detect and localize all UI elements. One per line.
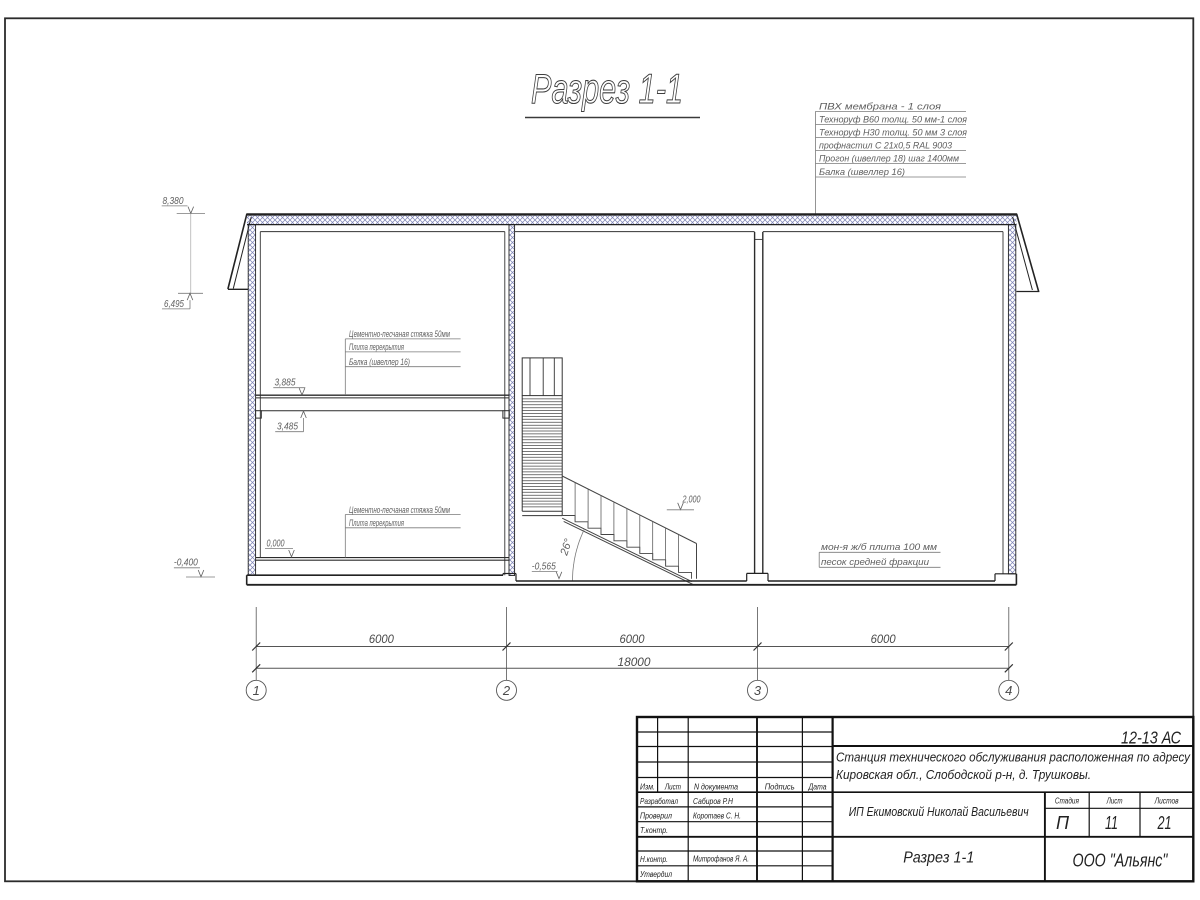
svg-text:21: 21: [1157, 813, 1172, 833]
svg-text:Станция технического обслужива: Станция технического обслуживания распол…: [836, 750, 1191, 765]
svg-text:6000: 6000: [369, 634, 395, 646]
svg-text:Изм.: Изм.: [640, 782, 655, 791]
svg-text:6,495: 6,495: [164, 299, 184, 310]
svg-text:Подпись: Подпись: [765, 782, 795, 791]
svg-text:ООО "Альянс": ООО "Альянс": [1073, 851, 1169, 871]
svg-text:Цементно-песчаная стяжка 50мм: Цементно-песчаная стяжка 50мм: [349, 505, 450, 515]
svg-text:Техноруф В60 толщ. 50 мм-1 сло: Техноруф В60 толщ. 50 мм-1 слоя: [819, 115, 967, 125]
svg-text:П: П: [1056, 813, 1070, 833]
svg-text:Разрез 1-1: Разрез 1-1: [531, 65, 683, 112]
svg-text:2,000: 2,000: [682, 494, 701, 505]
svg-text:Т.контр.: Т.контр.: [640, 825, 668, 835]
svg-text:Балка (швеллер 16): Балка (швеллер 16): [349, 357, 410, 367]
svg-text:3,485: 3,485: [277, 422, 298, 433]
svg-text:профнастил С 21х0,5 RAL 9003: профнастил С 21х0,5 RAL 9003: [819, 141, 953, 151]
svg-text:песок средней фракции: песок средней фракции: [821, 557, 929, 567]
svg-text:-0,565: -0,565: [532, 562, 556, 573]
svg-text:Плита перекрытия: Плита перекрытия: [349, 342, 404, 352]
svg-text:6000: 6000: [620, 634, 646, 646]
svg-text:12-13 АС: 12-13 АС: [1121, 728, 1181, 748]
svg-text:Стадия: Стадия: [1055, 797, 1079, 806]
svg-text:ИП Екимовский Николай Васильев: ИП Екимовский Николай Васильевич: [849, 804, 1029, 819]
svg-text:4: 4: [1005, 683, 1012, 698]
svg-text:Разработал: Разработал: [640, 796, 678, 806]
svg-text:2: 2: [502, 683, 511, 698]
svg-text:Кировская обл., Слободской р-н: Кировская обл., Слободской р-н, д. Трушк…: [836, 767, 1091, 782]
svg-text:ПВХ мембрана - 1 слоя: ПВХ мембрана - 1 слоя: [819, 102, 941, 112]
svg-text:Н.контр.: Н.контр.: [640, 854, 668, 864]
svg-text:0,000: 0,000: [267, 539, 285, 550]
svg-text:Разрез 1-1: Разрез 1-1: [903, 850, 974, 867]
svg-text:Дата: Дата: [808, 782, 827, 791]
svg-text:6000: 6000: [871, 634, 897, 646]
svg-text:мон-я ж/б плита 100 мм: мон-я ж/б плита 100 мм: [821, 542, 938, 552]
svg-text:-0,400: -0,400: [174, 558, 198, 569]
svg-text:Коротаев С. Н.: Коротаев С. Н.: [693, 811, 741, 821]
svg-text:Проверил: Проверил: [640, 811, 672, 821]
svg-text:8,380: 8,380: [163, 196, 184, 207]
svg-text:Утвердил: Утвердил: [639, 869, 672, 879]
svg-text:Сабиров Р.Н: Сабиров Р.Н: [693, 796, 734, 806]
svg-text:Листов: Листов: [1154, 797, 1179, 806]
svg-text:Прогон (швеллер 18) шаг 1400мм: Прогон (швеллер 18) шаг 1400мм: [819, 154, 960, 164]
svg-text:3,885: 3,885: [275, 378, 296, 389]
svg-text:3: 3: [754, 683, 762, 698]
svg-text:N документа: N документа: [694, 782, 738, 791]
svg-text:Митрофанов Я. А.: Митрофанов Я. А.: [693, 854, 749, 864]
svg-text:Плита перекрытия: Плита перекрытия: [349, 518, 404, 528]
svg-text:1: 1: [253, 683, 260, 698]
svg-text:18000: 18000: [618, 657, 652, 669]
svg-text:Лист: Лист: [664, 782, 681, 791]
svg-text:Цементно-песчаная стяжка 50мм: Цементно-песчаная стяжка 50мм: [349, 329, 450, 339]
svg-text:Балка (швеллер 16): Балка (швеллер 16): [819, 167, 905, 177]
svg-text:11: 11: [1105, 813, 1118, 833]
svg-text:Лист: Лист: [1106, 797, 1123, 806]
svg-text:Техноруф Н30 толщ. 50 мм 3 сло: Техноруф Н30 толщ. 50 мм 3 слоя: [819, 128, 967, 138]
